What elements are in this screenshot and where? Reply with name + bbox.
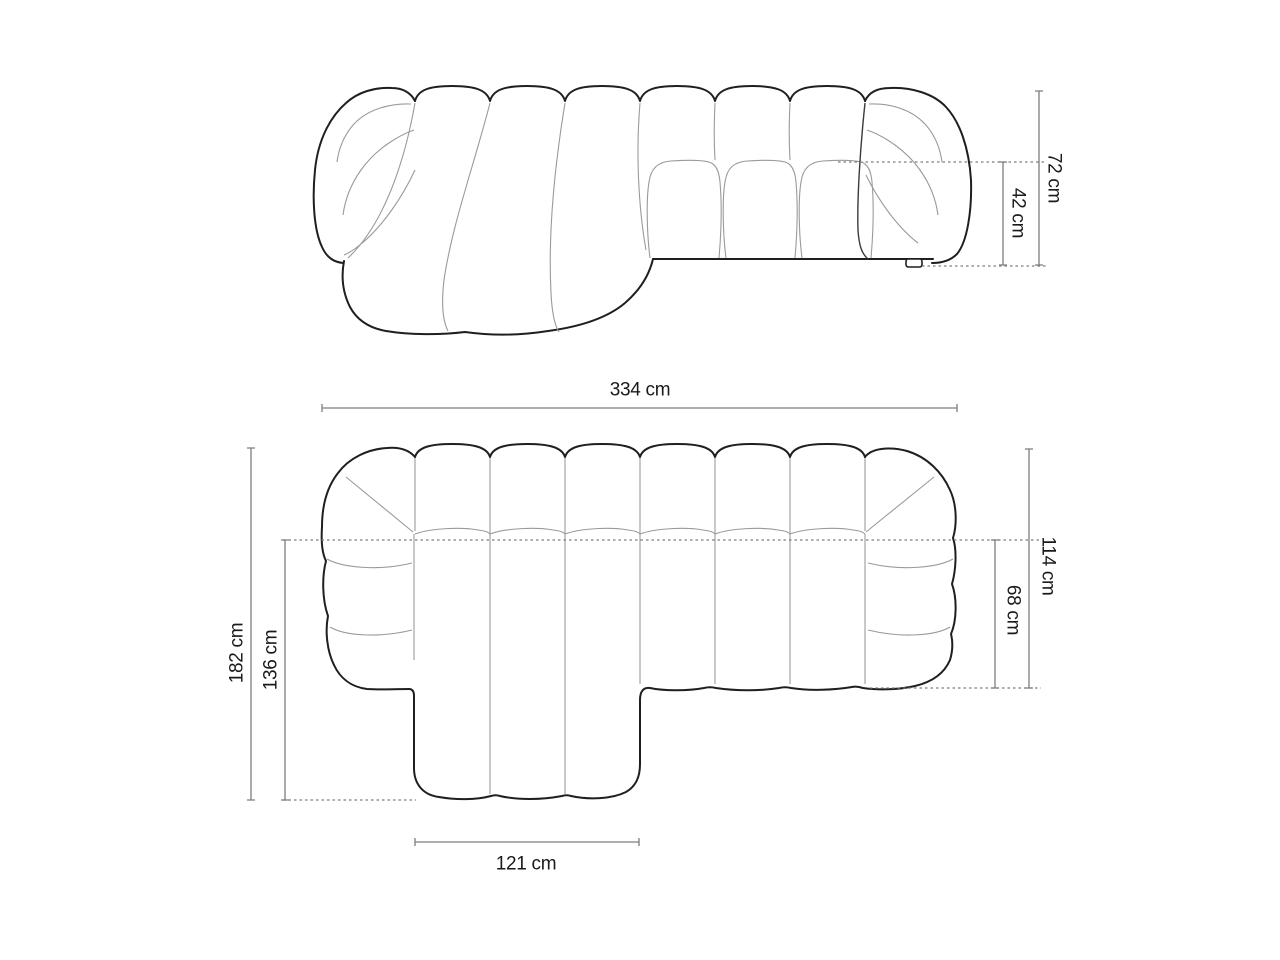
elevation-leg — [906, 259, 922, 267]
dimension-line-114cm — [1025, 449, 1033, 688]
elevation-seat-cushions — [647, 160, 873, 258]
dimension-line-72cm — [1035, 91, 1043, 265]
dimension-label-overall-height: 72 cm — [1045, 153, 1064, 203]
dimension-line-121cm — [415, 838, 639, 846]
elevation-chaise-seams — [348, 103, 646, 332]
dimension-lines — [247, 91, 1046, 846]
elevation-chaise-outline — [343, 259, 653, 335]
elevation-back-humps — [415, 86, 865, 101]
dimension-label-overall-depth: 182 cm — [228, 623, 247, 684]
plan-back-humps — [415, 444, 865, 457]
dimension-line-334cm — [322, 404, 957, 412]
dimension-line-42cm — [999, 162, 1007, 265]
dimension-label-chaise-length: 136 cm — [262, 630, 281, 691]
top-plan-drawing — [322, 444, 956, 799]
dimension-label-seat-depth: 68 cm — [1004, 585, 1023, 635]
dimension-label-chaise-width: 121 cm — [496, 855, 557, 874]
dimension-label-seat-height: 42 cm — [1009, 188, 1028, 238]
sofa-technical-drawing — [0, 0, 1280, 960]
front-elevation-drawing — [314, 86, 971, 335]
dimension-line-136cm — [281, 540, 289, 800]
plan-outline — [322, 448, 956, 799]
elevation-right-arm-front-seam — [858, 103, 868, 259]
elevation-right-arm-outline — [865, 88, 971, 263]
dimension-line-182cm — [247, 448, 255, 800]
dimension-line-68cm — [991, 540, 999, 688]
dimension-label-overall-width: 334 cm — [610, 381, 671, 400]
elevation-left-arm-seams — [337, 104, 415, 255]
elevation-back-channel-seams — [714, 103, 790, 160]
elevation-right-arm-seams — [866, 104, 942, 243]
dimension-label-body-depth: 114 cm — [1039, 536, 1058, 595]
dimension-diagram: 72 cm 42 cm 334 cm 182 cm 136 cm 114 cm … — [0, 0, 1280, 960]
elevation-left-arm-outline — [314, 88, 415, 263]
